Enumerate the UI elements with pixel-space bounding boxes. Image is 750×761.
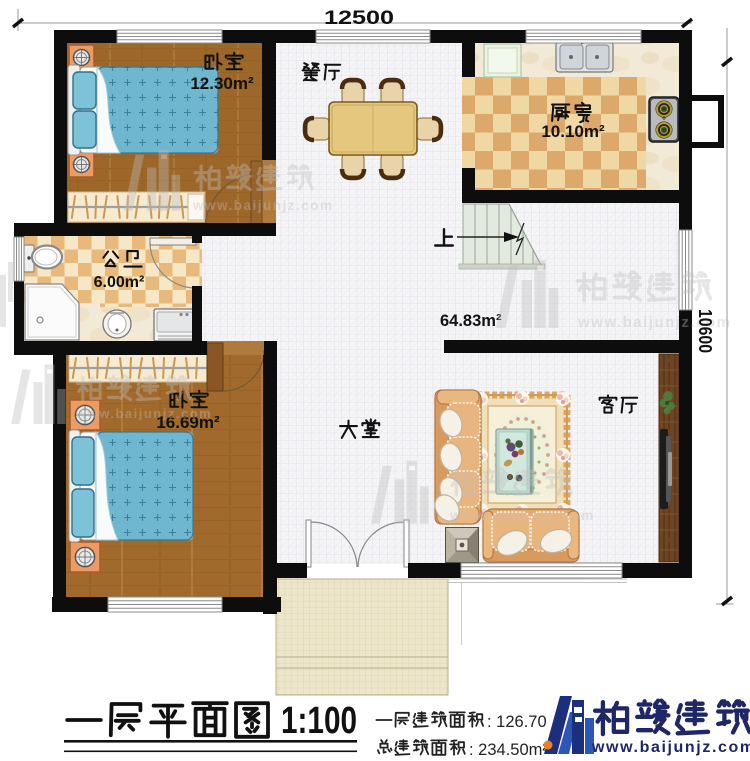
- svg-text:10.10m²: 10.10m²: [541, 122, 605, 141]
- svg-text:www.baijunjz.com: www.baijunjz.com: [591, 739, 750, 756]
- svg-text:1:100: 1:100: [281, 700, 357, 742]
- svg-text:www.baijunjz.com: www.baijunjz.com: [75, 406, 212, 421]
- svg-text:www.baijunjz.com: www.baijunjz.com: [192, 198, 334, 213]
- svg-text:: 126.70: : 126.70: [487, 713, 547, 731]
- svg-text:10600: 10600: [695, 309, 715, 353]
- svg-text:12500: 12500: [324, 8, 394, 29]
- svg-text:12.30m²: 12.30m²: [190, 74, 254, 93]
- svg-text:64.83m²: 64.83m²: [440, 312, 502, 330]
- svg-text:www.baijunjz.com: www.baijunjz.com: [449, 507, 595, 523]
- svg-text:: 234.50m²: : 234.50m²: [469, 741, 548, 759]
- svg-text:6.00m²: 6.00m²: [94, 274, 145, 291]
